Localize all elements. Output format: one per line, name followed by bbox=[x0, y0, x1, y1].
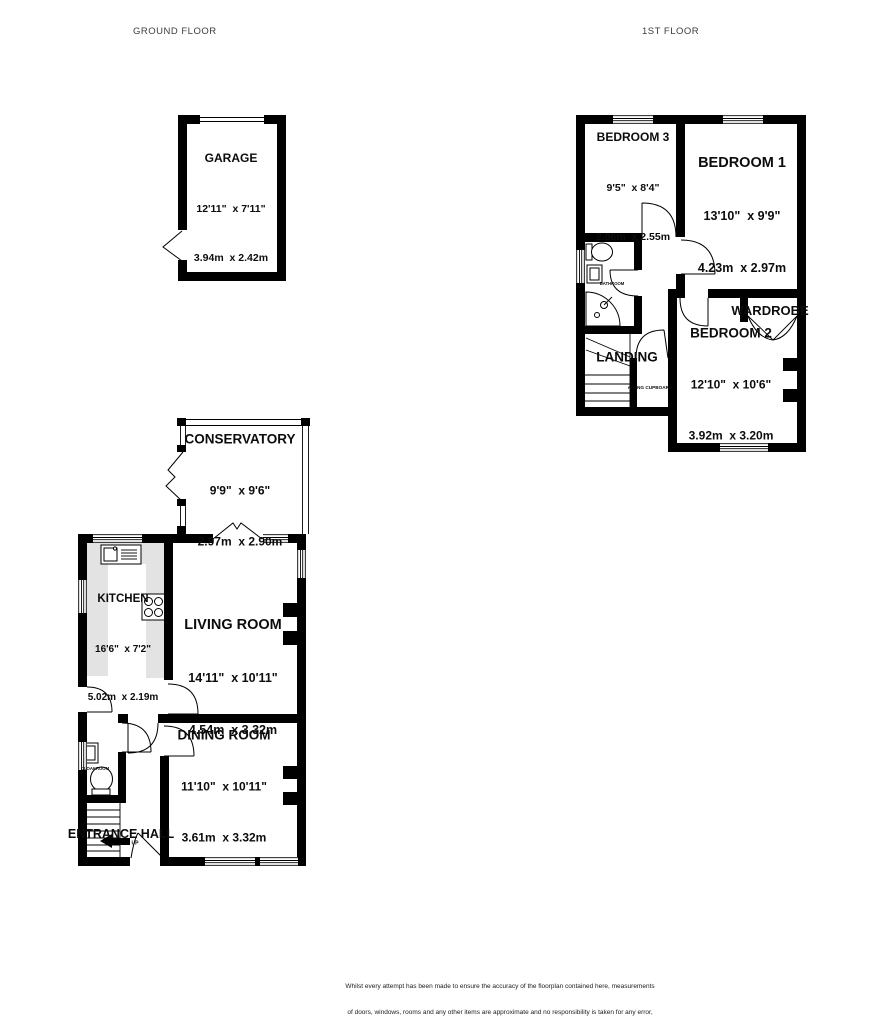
room-name: AIRING CUPBOARD bbox=[628, 385, 673, 390]
window bbox=[576, 250, 585, 283]
room-label-conservatory: CONSERVATORY 9'9" x 9'6" 2.97m x 2.90m bbox=[184, 394, 295, 567]
first-floor-title: 1ST FLOOR bbox=[642, 26, 699, 37]
room-name: KITCHEN bbox=[88, 593, 159, 606]
room-dim-metric: 5.02m x 2.19m bbox=[88, 692, 159, 704]
window bbox=[93, 534, 142, 543]
room-label-garage: GARAGE 12'11" x 7'11" 3.94m x 2.42m bbox=[194, 115, 268, 283]
room-label-airing-cupboard: AIRING CUPBOARD bbox=[628, 374, 673, 396]
room-name: CLOAKROOM bbox=[81, 766, 109, 771]
room-label-landing: LANDING bbox=[596, 319, 658, 382]
ground-floor-title: GROUND FLOOR bbox=[133, 26, 217, 37]
room-name: WARDROBE bbox=[731, 303, 808, 318]
window bbox=[78, 580, 87, 613]
room-dim-metric: 2.97m x 2.90m bbox=[184, 535, 295, 549]
room-label-bedroom3: BEDROOM 3 9'5" x 8'4" 2.86m x 2.55m bbox=[596, 94, 670, 262]
room-label-dining-room: DINING ROOM 11'10" x 10'11" 3.61m x 3.32… bbox=[178, 690, 271, 863]
stairs-up-label: UP bbox=[131, 828, 138, 851]
chimney-dining-room bbox=[283, 766, 297, 805]
room-dim-imperial: 11'10" x 10'11" bbox=[178, 780, 271, 794]
room-label-entrance-hall: ENTRANCE HALL bbox=[68, 798, 174, 856]
disclaimer-line: of doors, windows, rooms and any other i… bbox=[344, 1009, 657, 1018]
room-dim-metric: 3.94m x 2.42m bbox=[194, 252, 268, 264]
room-name: LANDING bbox=[596, 350, 658, 366]
room-name: BEDROOM 1 bbox=[698, 155, 786, 172]
disclaimer-text: Whilst every attempt has been made to en… bbox=[344, 966, 657, 1024]
room-name: CONSERVATORY bbox=[184, 431, 295, 447]
room-label-kitchen: KITCHEN 16'6" x 7'2" 5.02m x 2.19m bbox=[88, 556, 159, 722]
room-label-wardrobe: WARDROBE bbox=[731, 273, 808, 333]
room-name: DINING ROOM bbox=[178, 727, 271, 743]
room-dim-imperial: 9'5" x 8'4" bbox=[596, 182, 670, 194]
conservatory-opening bbox=[166, 452, 183, 502]
room-label-bathroom: BATHROOM bbox=[600, 271, 625, 291]
door-swing bbox=[128, 723, 158, 753]
garage-side-door-swing bbox=[163, 231, 182, 261]
room-dim-imperial: 16'6" x 7'2" bbox=[88, 643, 159, 655]
door-swing bbox=[122, 723, 151, 752]
room-name: BEDROOM 3 bbox=[596, 131, 670, 145]
room-name: LIVING ROOM bbox=[184, 617, 281, 634]
disclaimer-line: Whilst every attempt has been made to en… bbox=[344, 983, 657, 992]
room-dim-metric: 3.92m x 3.20m bbox=[689, 429, 774, 443]
room-label-cloakroom: CLOAKROOM bbox=[81, 756, 109, 776]
room-label-bedroom1: BEDROOM 1 13'10" x 9'9" 4.23m x 2.97m bbox=[698, 118, 786, 294]
room-dim-metric: 3.61m x 3.32m bbox=[178, 831, 271, 845]
room-name: BATHROOM bbox=[600, 281, 625, 286]
room-dim-imperial: 13'10" x 9'9" bbox=[698, 209, 786, 224]
room-dim-imperial: 12'11" x 7'11" bbox=[194, 203, 268, 215]
room-dim-imperial: 9'9" x 9'6" bbox=[184, 484, 295, 498]
floorplan-page: GROUND FLOOR 1ST FLOOR GARAGE 12'11" x 7… bbox=[0, 0, 882, 1024]
room-name: GARAGE bbox=[194, 152, 268, 166]
room-dim-imperial: 14'11" x 10'11" bbox=[184, 671, 281, 686]
chimney-bedroom2 bbox=[783, 358, 797, 402]
room-dim-imperial: 12'10" x 10'6" bbox=[689, 378, 774, 392]
room-dim-metric: 2.86m x 2.55m bbox=[596, 231, 670, 243]
room-name: ENTRANCE HALL bbox=[68, 827, 174, 842]
chimney-living-room bbox=[283, 603, 297, 645]
window bbox=[297, 550, 306, 578]
